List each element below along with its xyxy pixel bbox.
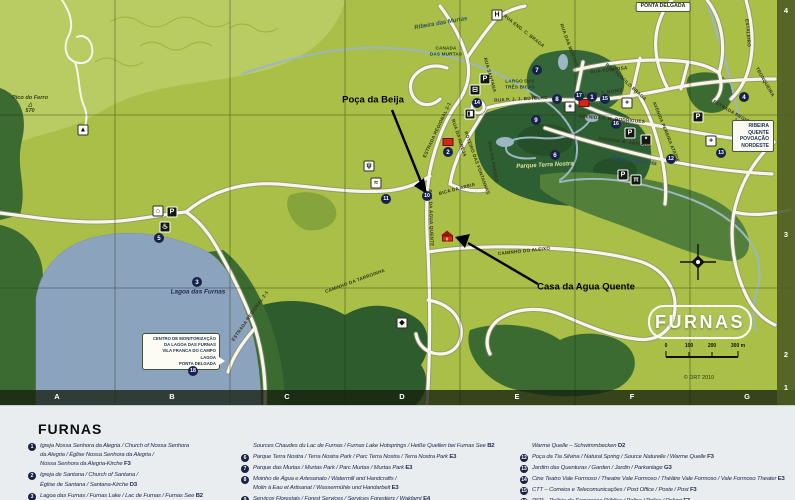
legend-item-number: 1 [28, 443, 36, 451]
road-label-estrada-regional-east: ESTRADA REGIONAL 2-1 [709, 99, 765, 137]
map-marker-18: 18 [188, 366, 198, 376]
legend-item-number: 15 [520, 487, 528, 495]
legend-item: 6Parque Terra Nostra / Terra Nostra Park… [253, 453, 525, 462]
road-label-estrada-regional-lake: ESTRADA REGIONAL 2-1 [231, 290, 270, 342]
legend-item-text: Lagoa das Furnas / Furnas Lake / Lac de … [40, 492, 245, 500]
legend-item-text: Molin à Eau et Artisanat / Wassermühle u… [253, 484, 525, 493]
lake-label-lagoa-das-furnas: Lagoa das Furnas [171, 288, 226, 295]
road-label-rua-teofilo-braga: RUA TEÓFILO BRAGA [604, 62, 647, 102]
sign-ribeira-quente-povoacao-nordeste: RIBEIRA QUENTE POVOAÇÃO NORDESTE [732, 120, 774, 152]
stream-label-ribeira-das-murtas: Ribeira das Murtas [414, 16, 468, 32]
legend-item-text: Sources Chaudes du Lac de Furnas / Furna… [253, 442, 525, 451]
legend-title: FURNAS [38, 421, 102, 437]
map-overlays: Ribeira das MurtasCANADA DAS MURTASLARGO… [0, 0, 795, 405]
map-marker-11: 11 [381, 194, 391, 204]
fuel-icon: ◨ [465, 109, 476, 120]
legend-item-text: Parque das Murtas / Murtas Park / Parc M… [253, 464, 525, 473]
map-title: FURNAS [648, 305, 752, 339]
legend-item-number: 2 [28, 472, 36, 480]
peak-label-pico-do-ferro: Pico do Ferro △ 570 [12, 95, 48, 115]
swim-icon: ≈ [371, 178, 382, 189]
grid-column-label: C [284, 392, 289, 401]
map-marker-1: 1 [587, 92, 597, 102]
scale-label: 0 [665, 344, 668, 350]
legend-item: 7Parque das Murtas / Murtas Park / Parc … [253, 464, 525, 473]
legend-item-number: 3 [28, 493, 36, 500]
grid-column-label: F [630, 392, 635, 401]
road-label-bica-da-areia: BICA DA AREIA [438, 182, 476, 197]
map-marker-13: 13 [716, 148, 726, 158]
grid-column-label: D [399, 392, 404, 401]
scale-label: 100 [685, 344, 693, 350]
legend-item-number: 8 [241, 476, 249, 484]
watermill-icon: * [641, 135, 652, 146]
legend-panel: FURNAS 1Igreja Nossa Senhora da Alegria … [0, 405, 795, 500]
monitor-line: PONTA DELGADA [146, 361, 216, 367]
monitoring-center-callout: CENTRO DE MONITORIZAÇÃO DA LAGOA DAS FUR… [142, 333, 220, 370]
road-label-caminho-do-aleixo: CAMINHO DO ALEIXO [498, 246, 551, 257]
map-marker-8: 8 [552, 94, 562, 104]
legend-item-text: Moinho de Água e Artesanato / Watermill … [253, 475, 525, 484]
grid-row-label: 2 [784, 350, 788, 359]
grid-column-label: A [54, 392, 59, 401]
legend-item: 3Lagoa das Furnas / Furnas Lake / Lac de… [40, 492, 245, 500]
road-label-rua-p-j-j-botelho: RUA P. J. J. BOTELHO [494, 95, 548, 103]
legend-item: Sources Chaudes du Lac de Furnas / Furna… [253, 442, 525, 451]
legend-item: 15CTT – Correios e Telecomunicações / Po… [532, 486, 790, 495]
legend-item-text: Église de Santana / Santana-Kirche D3 [40, 481, 245, 490]
house-icon [441, 231, 453, 242]
legend-item-number: 6 [241, 454, 249, 462]
maltese-cross-icon: + [622, 98, 633, 109]
legend-item-text: Parque Terra Nostra / Terra Nostra Park … [253, 453, 525, 462]
grid-column-label: G [744, 392, 750, 401]
legend-item-text: Nossa Senhora da Alegria-Kirche F3 [40, 460, 245, 469]
legend-item-text: Igreja Nossa Senhora da Alegria / Church… [40, 442, 245, 451]
legend-item-text: CTT – Correios e Telecomunicações / Post… [532, 486, 790, 495]
furnas-town-map-screenshot: Ribeira das MurtasCANADA DAS MURTASLARGO… [0, 0, 795, 500]
legend-column: Warme Quelle – Schwimmbecken D212Poça da… [532, 442, 790, 500]
hotspring-icon: ♨ [160, 222, 171, 233]
callout-label-poca-da-beija: Poça da Beija [342, 96, 404, 107]
legend-item-text: Warme Quelle – Schwimmbecken D2 [532, 442, 790, 451]
sign-ponta-delgada: PONTA DELGADA [636, 2, 691, 12]
legend-item-number: 14 [520, 476, 528, 484]
parking-icon: P [618, 170, 629, 181]
legend-column: Sources Chaudes du Lac de Furnas / Furna… [253, 442, 525, 500]
map-marker-14: 14 [472, 98, 482, 108]
map-marker-16: 16 [611, 119, 621, 129]
legend-item: 12Poça da Tia Silvina / Natural Spring /… [532, 453, 790, 462]
road-label-canada-das-murtas: CANADA DAS MURTAS [430, 46, 462, 57]
legend-item: 1Igreja Nossa Senhora da Alegria / Churc… [40, 442, 245, 470]
picnic-icon: π [631, 175, 642, 186]
road-label-tronqueira: TRONQUEIRA [754, 66, 775, 98]
fountain-icon: ψ [364, 161, 375, 172]
hospital-icon: H [492, 10, 503, 21]
grid-column-label: E [514, 392, 519, 401]
road-label-rua-formosa: RUA FORMOSA [590, 65, 628, 75]
grid-row-label: 4 [784, 6, 788, 15]
red-building-icon [443, 138, 454, 146]
map-marker-7: 7 [532, 65, 542, 75]
road-label-rua-eng-c-braga: RUA ENG. C. BRAGA [502, 13, 545, 48]
legend-item: Warme Quelle – Schwimmbecken D2 [532, 442, 790, 451]
map-area: Ribeira das MurtasCANADA DAS MURTASLARGO… [0, 0, 795, 405]
map-marker-15: 15 [600, 94, 610, 104]
road-label-caminho-da-tarroinha: CAMINHO DA TARROINHA [324, 268, 385, 295]
trail-icon: ▲ [78, 125, 89, 136]
map-marker-10: 10 [422, 191, 432, 201]
map-marker-17: 17 [574, 91, 584, 101]
legend-item-text: Jardim das Quenturas / Garden / Jardin /… [532, 464, 790, 473]
legend-item: 9Serviços Florestais / Forest Services /… [253, 495, 525, 500]
callout-label-casa-da-agua-quente: Casa da Agua Quente [537, 283, 635, 294]
map-marker-4: 4 [739, 92, 749, 102]
church-icon: + [565, 102, 576, 113]
map-marker-3: 3 [192, 277, 202, 287]
road-label-rua-do-paredo: RUA DO PAREDO [487, 141, 499, 183]
stream-label-ribeira-amarela: Ribeira Amarela [611, 156, 657, 168]
legend-item-number: 9 [241, 496, 249, 500]
map-marker-6: 6 [550, 150, 560, 160]
parking-icon: P [167, 207, 178, 218]
scale-label: 200 [708, 344, 716, 350]
legend-item-text: Igreja de Santana / Church of Santana / [40, 471, 245, 480]
road-label-estaleiro: ESTALEIRO [744, 19, 752, 48]
road-label-avenida-pereira-ataide: AVENIDA PEREIRA ATAÍDE [651, 101, 680, 163]
legend-item-text: da Alegria / Église Nossa Senhora da Ale… [40, 451, 245, 460]
legend-item-number: 13 [520, 465, 528, 473]
grid-row-label: 1 [784, 383, 788, 392]
scale-label: 300 m [731, 344, 745, 350]
legend-column: 1Igreja Nossa Senhora da Alegria / Churc… [40, 442, 245, 500]
legend-item-text: Cine Teatro Vale Formoso / Theatre Vale … [532, 475, 790, 484]
legend-item-number: 7 [241, 465, 249, 473]
place-label-largo-das-tres-bicas: LARGO DAS TRÊS BICAS [505, 79, 535, 90]
map-copyright: © DRT 2010 [684, 375, 714, 381]
monument-icon: ⌂ [153, 206, 164, 217]
legend-item-number: 12 [520, 454, 528, 462]
bus-icon: ⊟ [470, 85, 481, 96]
grid-column-label: B [169, 392, 174, 401]
road-label-roteiro-das-fontanhas: ROTEIRO DAS FONTANHAS [463, 131, 491, 196]
legend-item-text: Poça da Tia Silvina / Natural Spring / S… [532, 453, 790, 462]
road-label-rua-das-murtas: RUA DAS MURTAS [559, 23, 579, 67]
grid-row-label: 3 [784, 230, 788, 239]
viewpoint-icon: ◆ [397, 318, 408, 329]
parking-icon: P [625, 128, 636, 139]
map-marker-9: 9 [531, 115, 541, 125]
church-icon: + [706, 136, 717, 147]
map-marker-5: 5 [154, 233, 164, 243]
legend-item: 8Moinho de Água e Artesanato / Watermill… [253, 475, 525, 493]
legend-item: 2Igreja de Santana / Church of Santana /… [40, 471, 245, 489]
legend-item-text: Serviços Florestais / Forest Services / … [253, 495, 525, 500]
legend-item: 13Jardim das Quenturas / Garden / Jardin… [532, 464, 790, 473]
parking-icon: P [480, 74, 491, 85]
parking-icon: P [693, 112, 704, 123]
map-marker-12: 12 [666, 154, 676, 164]
map-marker-2: 2 [443, 147, 453, 157]
legend-item: 14Cine Teatro Vale Formoso / Theatre Val… [532, 475, 790, 484]
park-label-parque-terra-nostra: Parque Terra Nostra [516, 161, 574, 171]
